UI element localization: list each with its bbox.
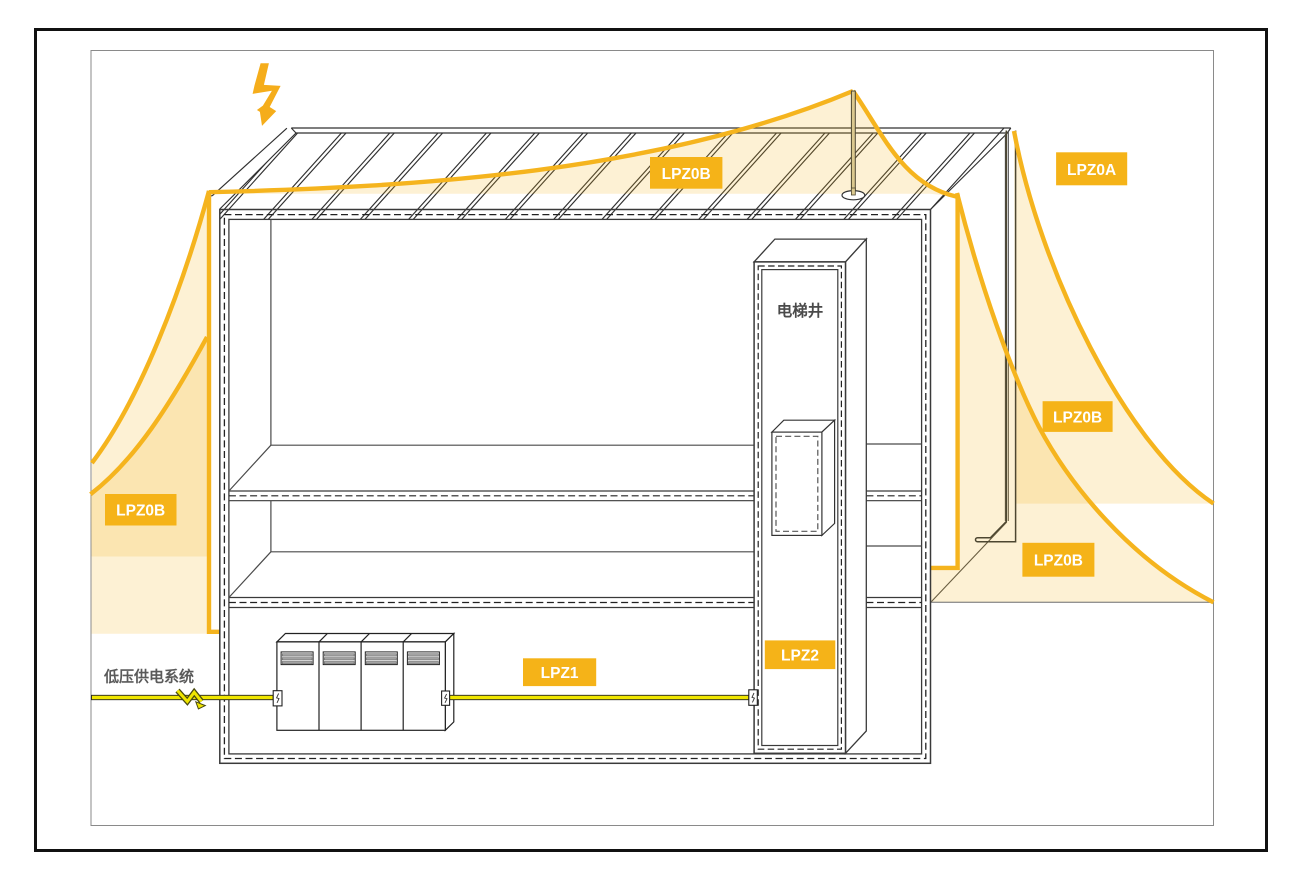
svg-text:LPZ0B: LPZ0B <box>1053 409 1102 426</box>
svg-text:电梯井: 电梯井 <box>777 301 824 320</box>
svg-text:LPZ0A: LPZ0A <box>1067 162 1116 179</box>
svg-text:LPZ0B: LPZ0B <box>662 166 711 183</box>
svg-text:LPZ0B: LPZ0B <box>1034 553 1083 570</box>
svg-text:低压供电系统: 低压供电系统 <box>103 668 194 686</box>
svg-text:LPZ1: LPZ1 <box>541 665 579 682</box>
svg-text:LPZ2: LPZ2 <box>781 648 819 665</box>
svg-text:LPZ0B: LPZ0B <box>116 503 165 520</box>
